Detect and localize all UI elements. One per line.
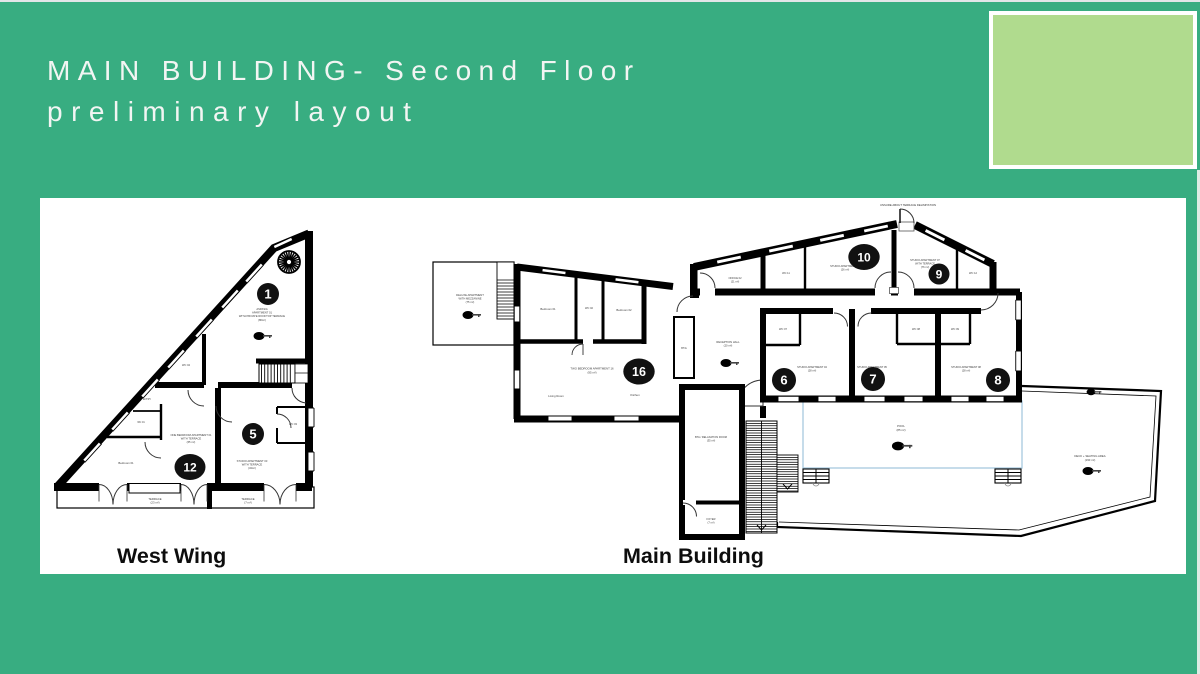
- svg-text:16: 16: [632, 365, 646, 379]
- svg-text:FOYER(7 m²): FOYER(7 m²): [707, 517, 716, 525]
- svg-text:Bedroom 01: Bedroom 01: [118, 461, 134, 465]
- svg-text:WC 01: WC 01: [137, 421, 145, 424]
- svg-text:ENTRY: ENTRY: [143, 398, 151, 401]
- svg-text:Bedroom 02: Bedroom 02: [616, 308, 632, 312]
- svg-text:Kitchen: Kitchen: [630, 393, 640, 397]
- svg-text:8: 8: [994, 373, 1001, 388]
- svg-text:UNSURE ABOUT TERRACE DELIMITAT: UNSURE ABOUT TERRACE DELIMITATION: [880, 203, 936, 207]
- svg-text:Bedroom 01: Bedroom 01: [540, 307, 556, 311]
- svg-text:BT/G: BT/G: [681, 347, 687, 350]
- svg-text:RECEPTION HALL(20 m²): RECEPTION HALL(20 m²): [716, 340, 740, 348]
- svg-text:6: 6: [780, 373, 787, 388]
- svg-text:10: 10: [857, 250, 871, 264]
- svg-text:5: 5: [249, 427, 256, 442]
- svg-text:Living Room: Living Room: [548, 394, 564, 398]
- svg-text:7: 7: [869, 372, 876, 387]
- svg-text:DECK + SEATING AREA(190 m²): DECK + SEATING AREA(190 m²): [1074, 454, 1105, 462]
- svg-text:12: 12: [183, 461, 197, 475]
- svg-text:9: 9: [936, 267, 943, 281]
- svg-text:1: 1: [264, 287, 271, 302]
- svg-text:POOL(85 m²): POOL(85 m²): [896, 424, 905, 432]
